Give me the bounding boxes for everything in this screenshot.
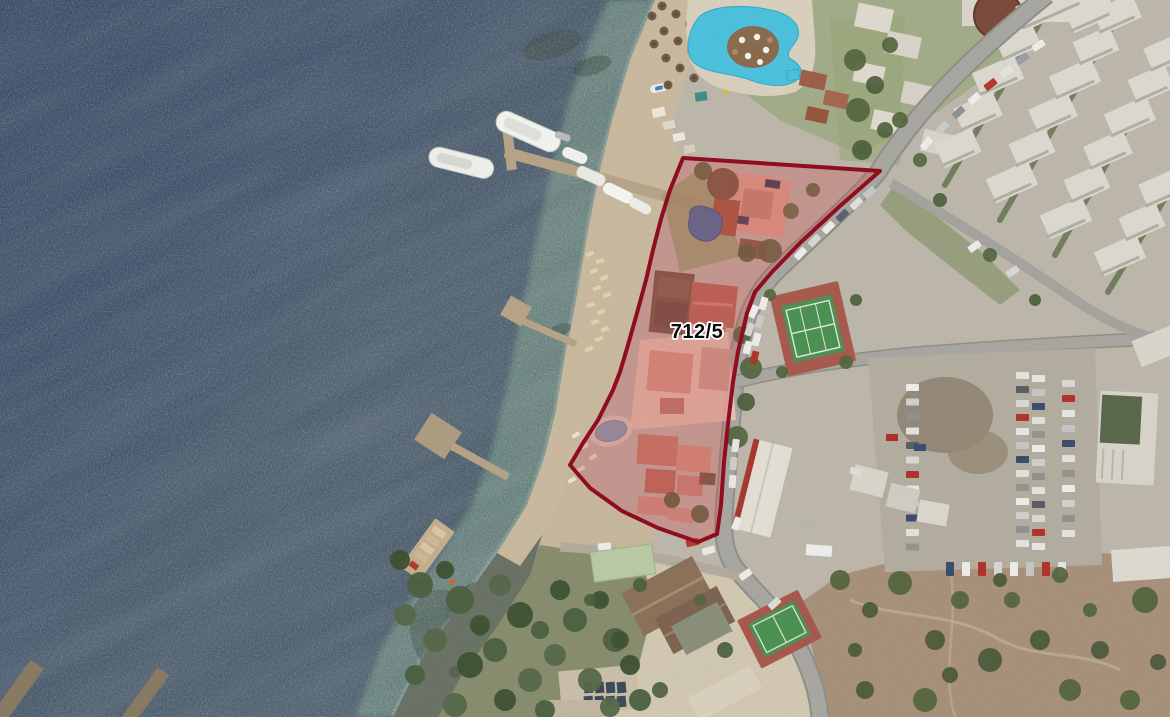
satellite-map-viewport[interactable]: 712/5 [0, 0, 1170, 717]
satellite-map-canvas[interactable]: 712/5 [0, 0, 1170, 717]
parcel-label: 712/5 [671, 321, 724, 343]
terrain-grain [0, 0, 1170, 717]
